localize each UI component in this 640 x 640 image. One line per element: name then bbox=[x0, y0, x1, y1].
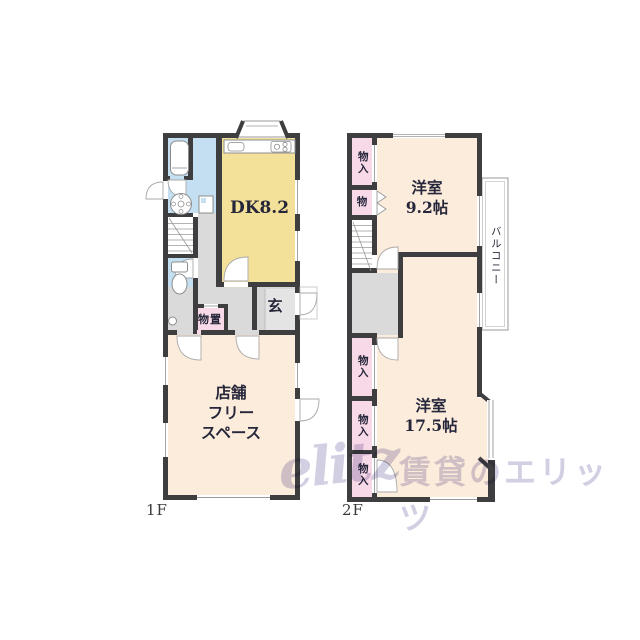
hall-2f bbox=[352, 273, 398, 335]
room-closet-a bbox=[352, 337, 372, 396]
toilet-sink-icon bbox=[169, 317, 177, 325]
room-closet-c bbox=[352, 454, 372, 497]
room-western-17-5-upper bbox=[403, 257, 477, 335]
toilet-tank-icon bbox=[172, 262, 188, 272]
toilet-bowl-icon bbox=[172, 274, 187, 294]
balcony-rail bbox=[482, 178, 508, 330]
entrance-step bbox=[265, 289, 295, 335]
bay-window-dk bbox=[236, 121, 288, 138]
floorplan-drawing bbox=[0, 0, 640, 640]
room-shop bbox=[168, 335, 295, 495]
floor1-plan bbox=[146, 121, 319, 500]
floorplan-canvas: DK8.2 玄 物置 店舗 フリー スペース 1F 洋室 9.2帖 洋室 17.… bbox=[0, 0, 640, 640]
bathtub-icon bbox=[171, 141, 189, 175]
room-closet-top bbox=[352, 138, 372, 185]
floor2-plan bbox=[347, 133, 508, 502]
vanity-icon bbox=[171, 194, 192, 215]
room-western-9-2 bbox=[377, 138, 477, 252]
room-closet-mini bbox=[352, 190, 372, 215]
room-closet-b bbox=[352, 401, 372, 450]
